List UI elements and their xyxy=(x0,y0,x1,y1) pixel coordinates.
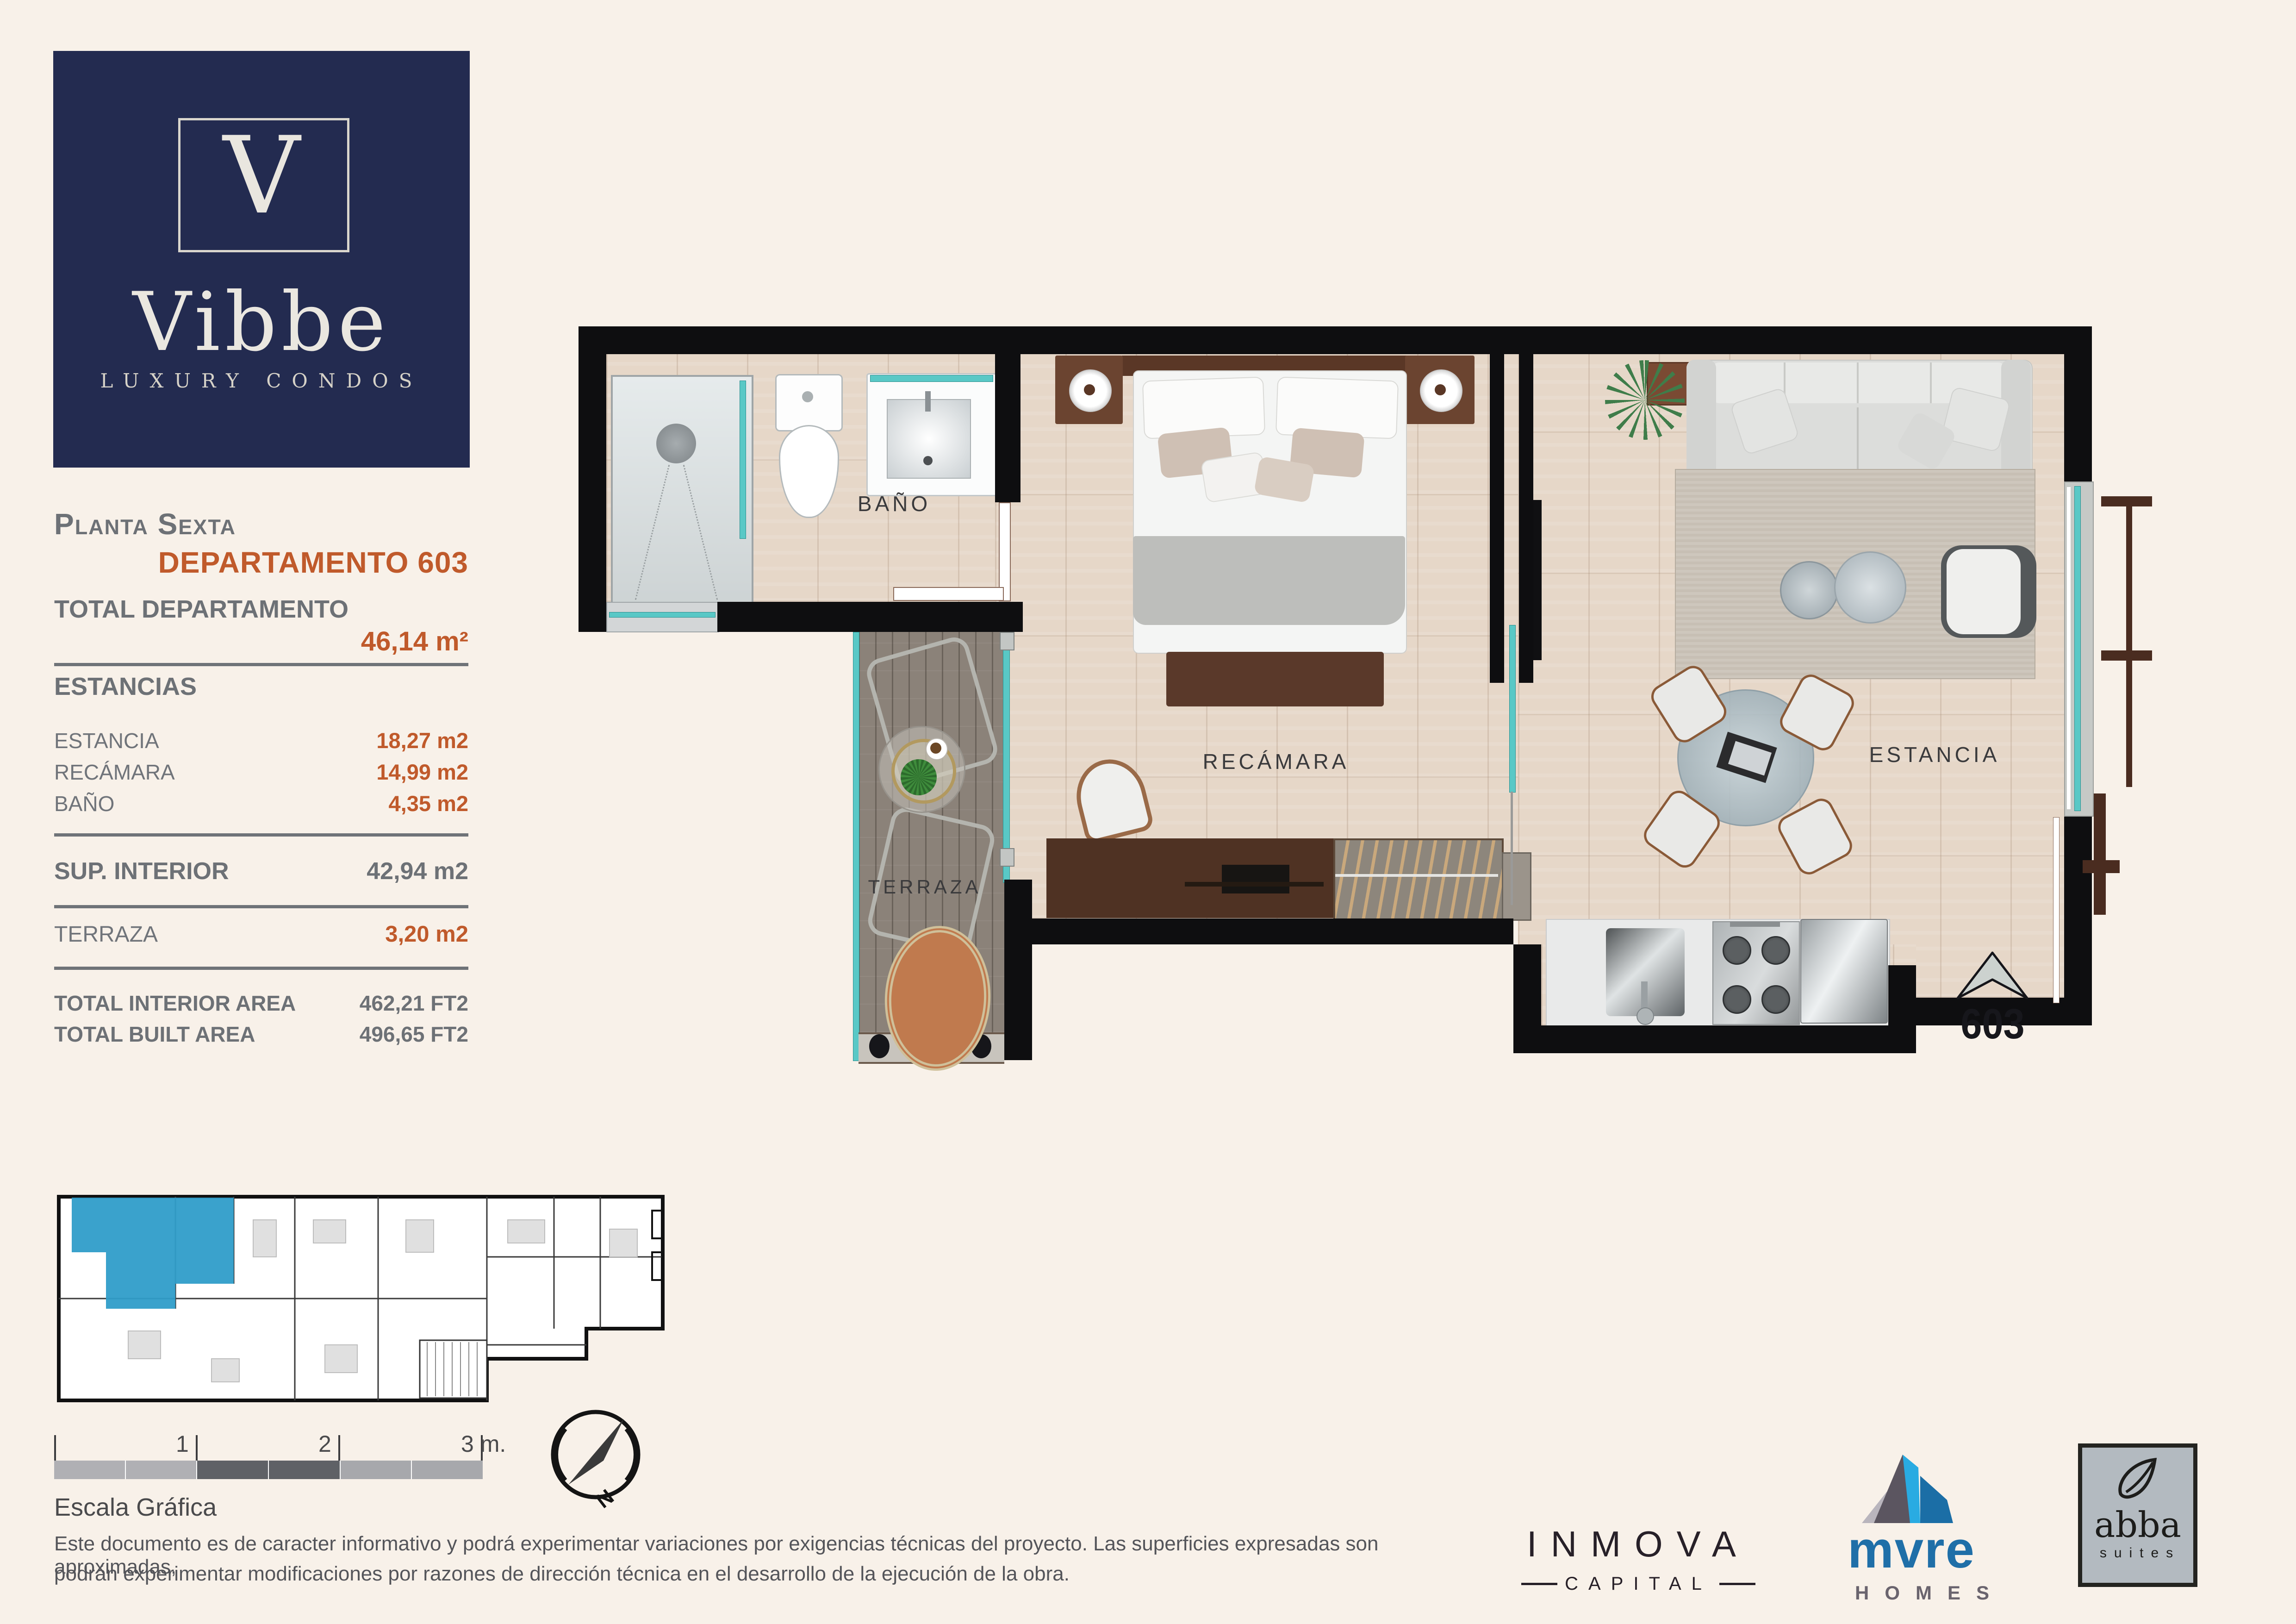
divider xyxy=(54,833,468,837)
kitchen-faucet-base xyxy=(1636,1007,1654,1025)
lamp-center-dot xyxy=(1435,384,1446,395)
room-row-bano: BAÑO 4,35 m2 xyxy=(54,791,468,816)
unit-number: 603 xyxy=(1956,1000,2029,1049)
brand-name: Vibbe xyxy=(53,275,470,369)
burner xyxy=(1761,985,1790,1014)
bed-bench xyxy=(1166,652,1384,706)
wall xyxy=(1490,354,1504,683)
scale-label-3: 3 m. xyxy=(461,1430,506,1457)
dresser xyxy=(1046,838,1333,918)
mvre-sub: HOMES xyxy=(1847,1582,1976,1604)
shower-tray xyxy=(611,375,753,617)
wall-bath-bottom xyxy=(717,602,1023,632)
wall-top xyxy=(579,326,2092,354)
sink-faucet xyxy=(925,391,931,412)
wall-kitchen-right-column xyxy=(1888,965,1916,1053)
scale-bar xyxy=(54,1461,483,1479)
scale-segment xyxy=(412,1461,483,1479)
floorplan-brochure-page: V Vibbe LUXURY CONDOS Planta Sexta DEPAR… xyxy=(0,0,2296,1624)
terrace-post xyxy=(869,1034,890,1058)
toilet-tank xyxy=(775,374,843,431)
wall-left xyxy=(579,326,606,632)
abba-name: abba xyxy=(2082,1507,2193,1543)
closet-hanger-rack xyxy=(1333,838,1504,922)
room-row-recamara: RECÁMARA 14,99 m2 xyxy=(54,759,468,785)
room-row-value: 4,35 m2 xyxy=(389,791,468,816)
scale-segment xyxy=(341,1461,412,1479)
scale-segment xyxy=(126,1461,198,1479)
closet-rod xyxy=(1335,874,1498,877)
cooktop xyxy=(1712,921,1800,1025)
burner xyxy=(1723,936,1751,965)
terraza-value: 3,20 m2 xyxy=(385,921,468,947)
terrace-pocket-door xyxy=(893,587,1004,601)
unit-direction-arrow-icon xyxy=(1953,948,2032,1004)
divider xyxy=(54,663,468,666)
facade-tmarker-horizontal xyxy=(2083,860,2120,873)
scale-caption: Escala Gráfica xyxy=(54,1493,217,1522)
bathroom-door xyxy=(999,502,1011,601)
living-window-glass xyxy=(2074,486,2081,811)
total-departamento-label: TOTAL DEPARTAMENTO xyxy=(54,595,348,624)
facade-mullion-stub xyxy=(2101,496,2152,506)
abba-logo: abba suites xyxy=(2078,1443,2197,1587)
facade-mullion-vertical xyxy=(2126,506,2132,787)
divider xyxy=(54,967,468,970)
room-row-value: 14,99 m2 xyxy=(376,759,468,785)
label-recamara: RECÁMARA xyxy=(1203,749,1350,774)
inmova-sub: CAPITAL xyxy=(1565,1574,1712,1594)
living-plant-leaves xyxy=(1605,360,1685,440)
inmova-name: INMOVA xyxy=(1509,1523,1768,1565)
scale-segment xyxy=(197,1461,269,1479)
terrace-plant-pot xyxy=(901,759,937,795)
inmova-rule-right xyxy=(1719,1583,1755,1585)
total-built-value: 496,65 FT2 xyxy=(360,1022,468,1047)
brand-tagline: LUXURY CONDOS xyxy=(53,369,470,392)
scale-segment xyxy=(269,1461,341,1479)
cooktop-handle xyxy=(1730,922,1780,927)
toilet-flush-button xyxy=(802,391,813,402)
wall-right-bottom xyxy=(2064,815,2092,1025)
terraza-label: TERRAZA xyxy=(54,922,158,947)
inmova-logo: INMOVA CAPITAL xyxy=(1509,1523,1768,1594)
wall-right-top xyxy=(2064,326,2092,481)
wall-terrace-corner xyxy=(1004,880,1032,1060)
wall-bedroom-bottom xyxy=(1032,918,1513,944)
shower-head xyxy=(656,424,696,463)
shower-glass xyxy=(740,381,746,539)
room-row-value: 18,27 m2 xyxy=(376,728,468,753)
room-row-label: ESTANCIA xyxy=(54,728,159,753)
abba-leaf-icon xyxy=(2112,1454,2163,1505)
room-row-estancia: ESTANCIA 18,27 m2 xyxy=(54,728,468,753)
total-departamento-value: 46,14 m² xyxy=(54,626,468,657)
divider xyxy=(54,905,468,908)
room-row-label: BAÑO xyxy=(54,791,114,816)
sup-interior-value: 42,94 m2 xyxy=(367,857,468,885)
bed-blanket xyxy=(1133,536,1405,625)
terrace-railing-glass xyxy=(853,632,859,1061)
total-interior-row: TOTAL INTERIOR AREA 462,21 FT2 xyxy=(54,991,468,1016)
room-row-label: RECÁMARA xyxy=(54,760,175,785)
abba-sub: suites xyxy=(2082,1545,2193,1561)
label-bano: BAÑO xyxy=(858,491,931,516)
sup-interior-label: SUP. INTERIOR xyxy=(54,857,229,885)
refrigerator xyxy=(1800,919,1888,1024)
facade-mullion-stub xyxy=(2101,650,2152,661)
label-estancia: ESTANCIA xyxy=(1869,742,2000,767)
scale-segment xyxy=(54,1461,126,1479)
disclaimer-line-2: podrán experimentar modificaciones por r… xyxy=(54,1562,1470,1586)
total-built-label: TOTAL BUILT AREA xyxy=(54,1022,255,1047)
wall-bath-right xyxy=(995,354,1020,502)
mvre-logo: mvre HOMES xyxy=(1847,1449,1976,1604)
burner xyxy=(1723,985,1751,1014)
estancias-header: ESTANCIAS xyxy=(54,672,197,701)
wall-kitchen-bottom xyxy=(1513,1025,1916,1053)
floor-label: Planta Sexta xyxy=(54,507,236,541)
dresser-shelf-line xyxy=(1185,882,1324,887)
slider-jamb xyxy=(1000,632,1014,650)
window-inner-sill xyxy=(2067,487,2071,809)
scale-label-2: 2 xyxy=(318,1430,331,1457)
total-interior-label: TOTAL INTERIOR AREA xyxy=(54,991,296,1016)
sliding-door-track xyxy=(1511,792,1513,905)
coffee-cup-fill xyxy=(930,743,941,754)
coffee-table-round xyxy=(1834,551,1906,624)
living-armchair-cushion xyxy=(1947,549,2021,634)
key-plan xyxy=(54,1192,667,1407)
inmova-rule-left xyxy=(1521,1583,1557,1585)
wall xyxy=(1519,354,1533,683)
lamp-center-dot xyxy=(1084,384,1095,395)
sink-drain xyxy=(923,456,933,465)
bed-pillow xyxy=(1276,376,1399,439)
burner xyxy=(1761,936,1790,965)
sup-interior-row: SUP. INTERIOR 42,94 m2 xyxy=(54,857,468,885)
entry-door xyxy=(2053,817,2060,1003)
closet-side-cabinet xyxy=(1502,852,1531,921)
slider-jamb xyxy=(1000,848,1014,867)
logo-v-initial: V xyxy=(178,106,345,245)
coffee-table-round xyxy=(1780,561,1838,619)
facade-tmarker-vertical xyxy=(2094,793,2106,915)
brand-logo-block: V Vibbe LUXURY CONDOS xyxy=(53,51,470,468)
total-interior-value: 462,21 FT2 xyxy=(360,991,468,1016)
label-terraza: TERRAZA xyxy=(868,876,981,898)
mvre-name: mvre xyxy=(1847,1528,1976,1572)
terraza-row: TERRAZA 3,20 m2 xyxy=(54,921,468,947)
dresser-handle xyxy=(1222,865,1289,893)
unit-title: DEPARTAMENTO 603 xyxy=(54,545,468,580)
scale-label-1: 1 xyxy=(176,1430,189,1457)
window-glass xyxy=(609,612,716,618)
tv-panel xyxy=(1533,500,1542,660)
mvre-mountain-icon xyxy=(1858,1449,1965,1525)
bedroom-sliding-door-glass xyxy=(1509,625,1516,793)
terrace-sliding-glass xyxy=(1003,632,1010,883)
vanity-backsplash xyxy=(870,375,993,382)
total-built-row: TOTAL BUILT AREA 496,65 FT2 xyxy=(54,1022,468,1047)
